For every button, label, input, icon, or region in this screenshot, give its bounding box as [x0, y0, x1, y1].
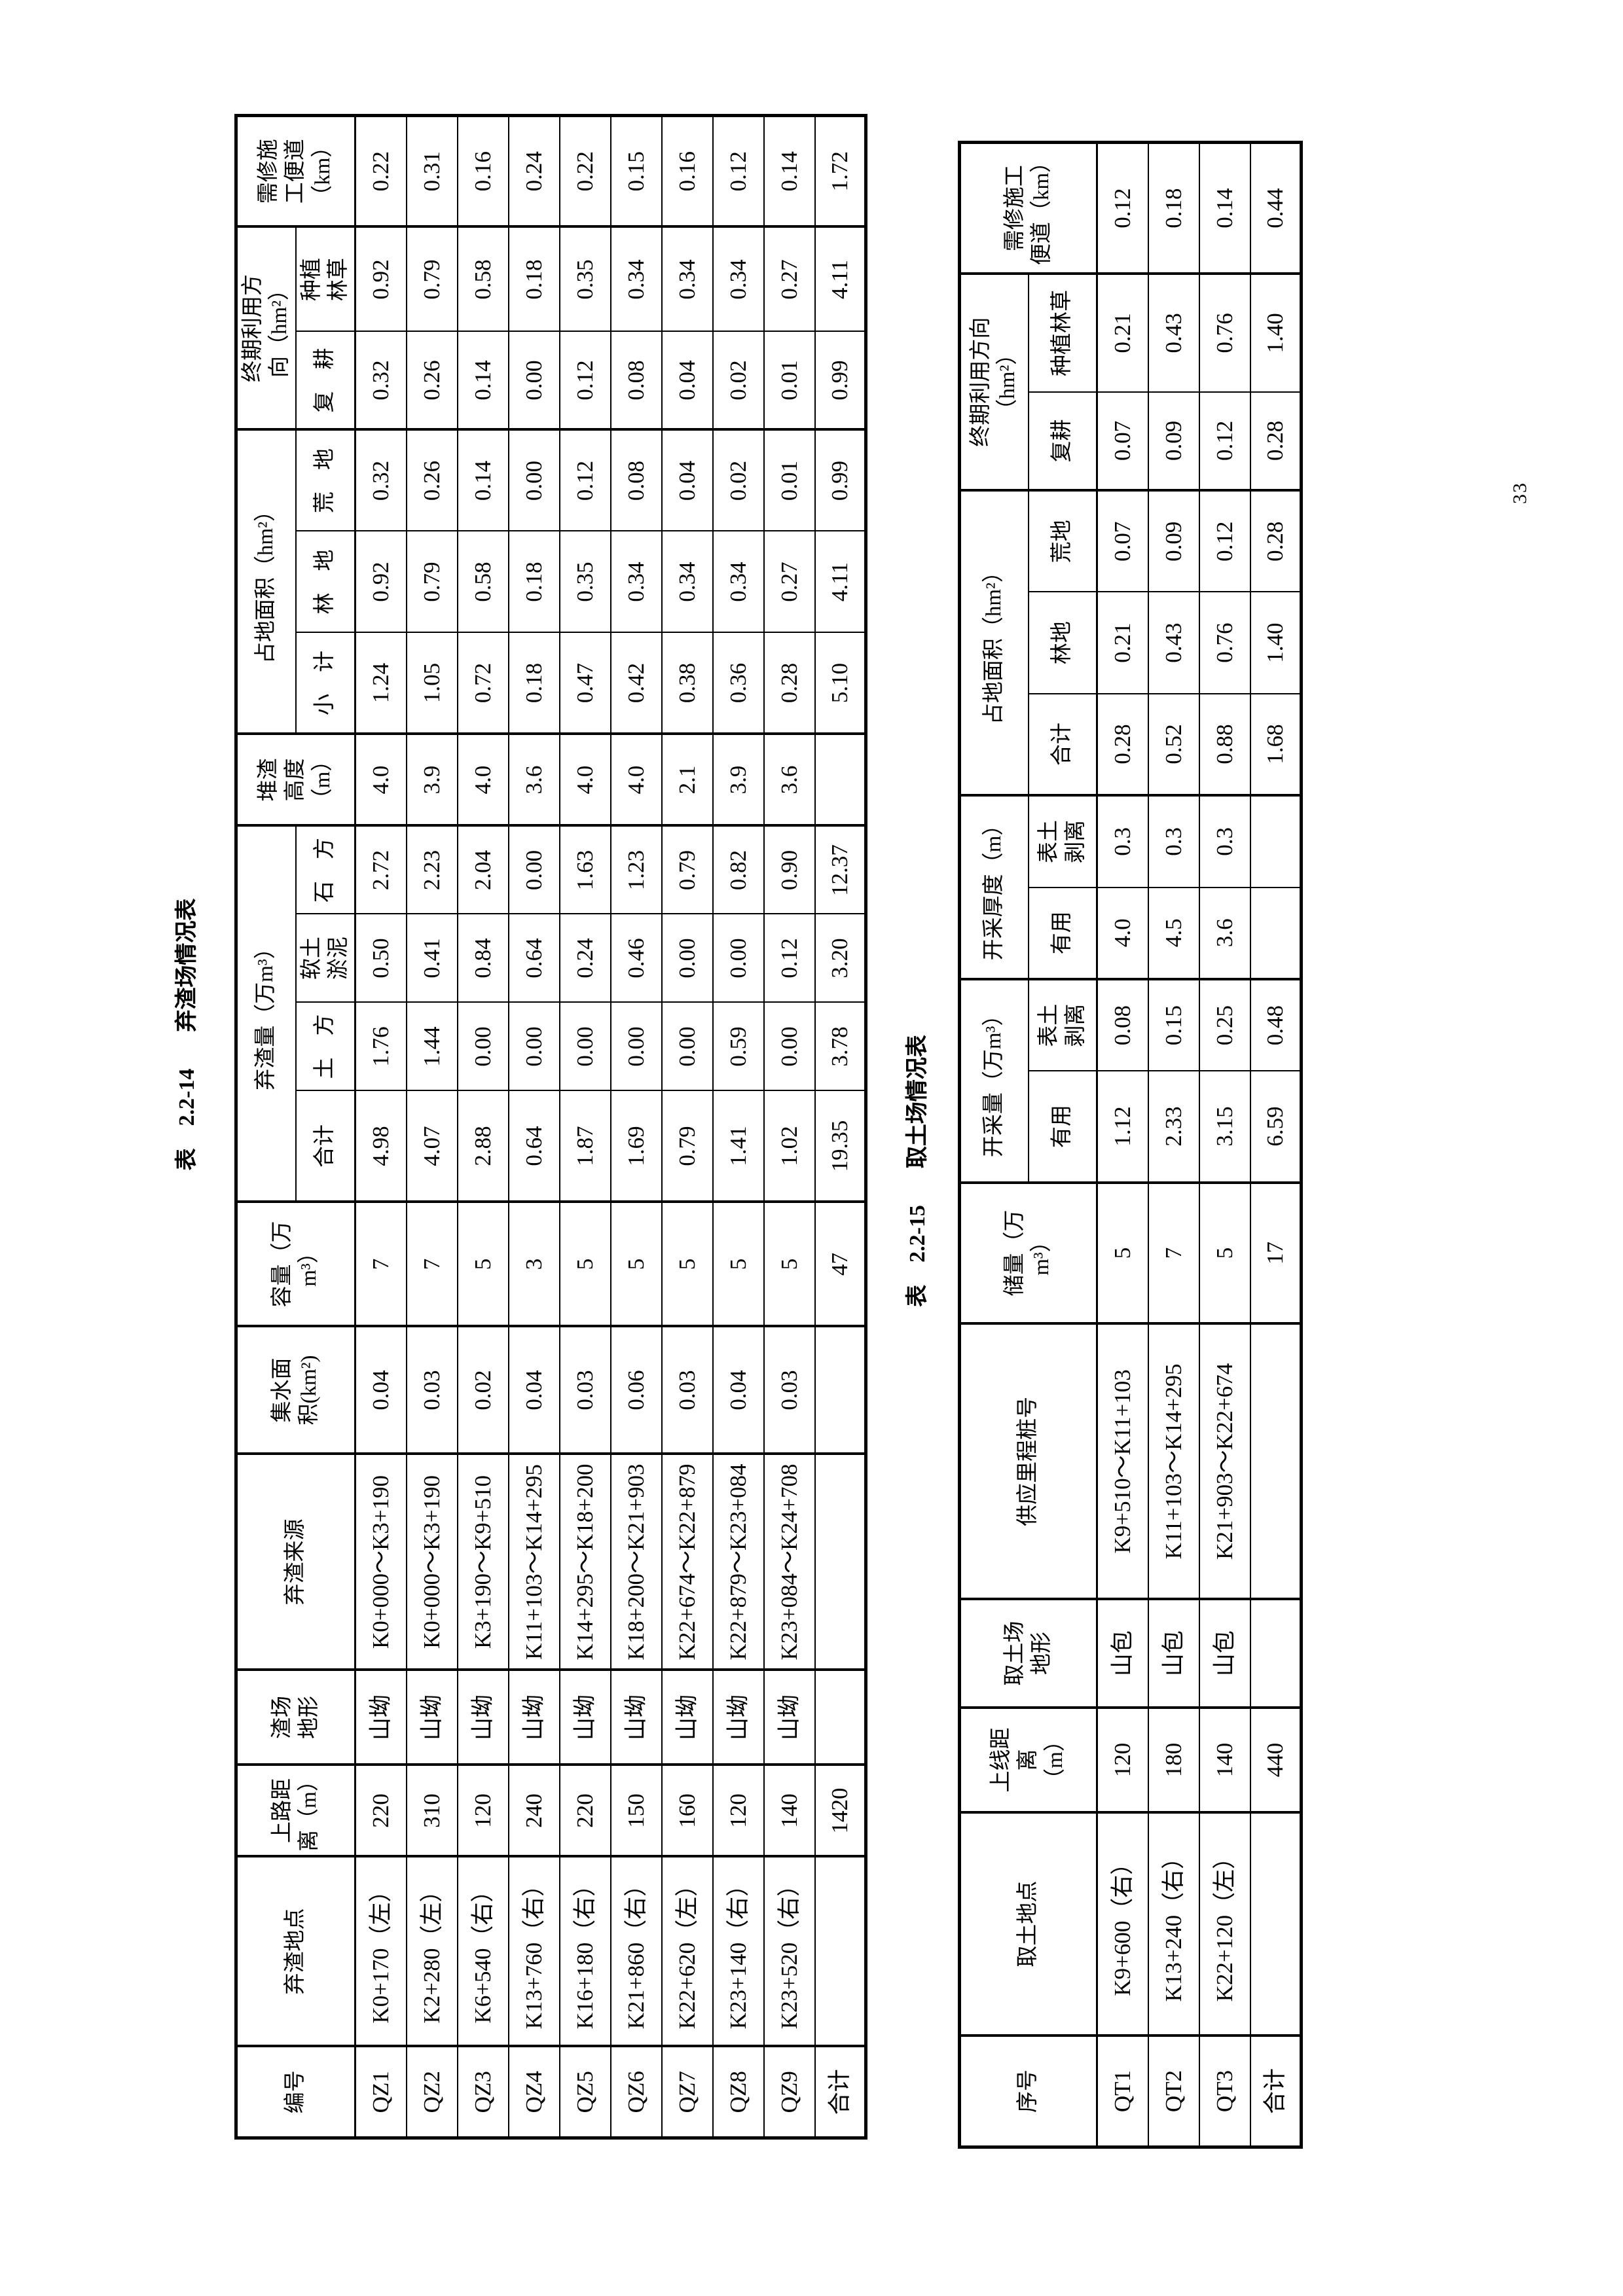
cell: 山坳	[764, 1670, 815, 1765]
cell: 2.04	[458, 826, 509, 914]
cell: 0.00	[764, 1003, 815, 1091]
cell: 310	[407, 1765, 458, 1857]
table-row: 合计440176.590.481.681.400.280.281.400.44	[1250, 143, 1302, 2147]
cell: 0.12	[1199, 490, 1250, 592]
cell: 0.22	[356, 116, 407, 227]
borrow-pit-table: 序号取土地点上线距 离 （m）取土场 地形供应里程桩号储量（万 m³）开采量（万…	[958, 141, 1303, 2149]
header-row: 编号弃渣地点上路距 离（m）渣场 地形弃渣来源集水面 积(km²)容量（万 m³…	[236, 116, 296, 2138]
cell: 0.79	[662, 1091, 713, 1202]
cell: 山包	[1199, 1599, 1250, 1707]
cell	[815, 1327, 866, 1454]
cell: 0.09	[1148, 490, 1199, 592]
cell: 0.18	[509, 531, 560, 633]
cell: 0.34	[611, 227, 662, 332]
cell: 0.47	[560, 633, 611, 734]
cell: 0.03	[407, 1327, 458, 1454]
column-header: 上线距 离 （m）	[960, 1708, 1097, 1812]
column-subheader: 复耕	[1029, 392, 1097, 490]
cell: K0+170（左）	[356, 1857, 407, 2047]
cell: 0.18	[509, 633, 560, 734]
cell: 3	[509, 1202, 560, 1327]
column-subheader: 种植 林草	[296, 227, 356, 332]
cell: 2.72	[356, 826, 407, 914]
cell: 0.03	[560, 1327, 611, 1454]
cell: 0.15	[611, 116, 662, 227]
cell: 0.07	[1097, 490, 1148, 592]
cell: K2+280（左）	[407, 1857, 458, 2047]
cell: 山坳	[509, 1670, 560, 1765]
cell	[1250, 888, 1302, 979]
table-row: QZ3K6+540（右）120山坳K3+190～K9+5100.0252.880…	[458, 116, 509, 2138]
cell: 0.09	[1148, 392, 1199, 490]
cell: 1.69	[611, 1091, 662, 1202]
page-number: 33	[1509, 482, 1531, 504]
cell: 6.59	[1250, 1071, 1302, 1182]
cell: K14+295～K18+200	[560, 1454, 611, 1670]
cell: 0.76	[1199, 274, 1250, 391]
column-subheader: 林 地	[296, 531, 356, 633]
cell: 0.12	[560, 430, 611, 531]
cell: 0.00	[560, 1003, 611, 1091]
cell: 220	[356, 1765, 407, 1857]
cell: 140	[1199, 1708, 1250, 1812]
cell: K21+860（右）	[611, 1857, 662, 2047]
cell: QZ1	[356, 2047, 407, 2138]
cell: 0.00	[458, 1003, 509, 1091]
cell: 0.41	[407, 914, 458, 1003]
cell: 5.10	[815, 633, 866, 734]
cell: 0.43	[1148, 592, 1199, 693]
cell: 0.28	[1250, 490, 1302, 592]
cell: 4.0	[611, 734, 662, 826]
cell: K13+240（右）	[1148, 1812, 1199, 2036]
cell: 12.37	[815, 826, 866, 914]
cell: 1.40	[1250, 592, 1302, 693]
table-row: QT2K13+240（右）180山包K11+103～K14+29572.330.…	[1148, 143, 1199, 2147]
cell: 0.25	[1199, 979, 1250, 1071]
cell: 0.06	[611, 1327, 662, 1454]
cell: 220	[560, 1765, 611, 1857]
cell: 0.31	[407, 116, 458, 227]
cell: 0.34	[611, 531, 662, 633]
cell: QZ9	[764, 2047, 815, 2138]
cell: 0.12	[764, 914, 815, 1003]
cell: QZ3	[458, 2047, 509, 2138]
cell: 5	[560, 1202, 611, 1327]
cell: 山坳	[407, 1670, 458, 1765]
cell: K22+879～K23+084	[713, 1454, 764, 1670]
cell: 0.99	[815, 332, 866, 430]
cell: 0.27	[764, 531, 815, 633]
cell: 2.33	[1148, 1071, 1199, 1182]
cell: 7	[356, 1202, 407, 1327]
cell: 1.41	[713, 1091, 764, 1202]
cell: 0.15	[1148, 979, 1199, 1071]
cell: QZ2	[407, 2047, 458, 2138]
cell: 440	[1250, 1708, 1302, 1812]
column-subheader: 软土 淤泥	[296, 914, 356, 1003]
cell: 5	[458, 1202, 509, 1327]
table-row: QZ5K16+180（右）220山坳K14+295～K18+2000.0351.…	[560, 116, 611, 2138]
cell	[1250, 795, 1302, 887]
column-header: 开采量（万m³）	[960, 979, 1029, 1183]
cell: K3+190～K9+510	[458, 1454, 509, 1670]
cell: K18+200～K21+903	[611, 1454, 662, 1670]
cell: 0.12	[560, 332, 611, 430]
cell: QZ6	[611, 2047, 662, 2138]
cell: 3.6	[509, 734, 560, 826]
cell: 0.46	[611, 914, 662, 1003]
cell: 0.64	[509, 914, 560, 1003]
column-header: 上路距 离（m）	[236, 1765, 356, 1857]
cell: 0.00	[509, 430, 560, 531]
column-subheader: 林地	[1029, 592, 1097, 693]
column-header: 堆渣 高度 （m）	[236, 734, 356, 826]
cell: 0.04	[713, 1327, 764, 1454]
column-header: 序号	[960, 2036, 1097, 2147]
cell: 5	[1097, 1183, 1148, 1324]
column-header: 需修施 工便道 （km）	[236, 116, 356, 227]
cell: K21+903～K22+674	[1199, 1323, 1250, 1599]
cell: 4.0	[1097, 888, 1148, 979]
column-subheader: 荒 地	[296, 430, 356, 531]
cell: 0.42	[611, 633, 662, 734]
column-subheader: 合计	[296, 1091, 356, 1202]
cell: QT3	[1199, 2036, 1250, 2147]
cell: 4.07	[407, 1091, 458, 1202]
cell: 0.04	[662, 332, 713, 430]
cell: 0.72	[458, 633, 509, 734]
cell: 山包	[1148, 1599, 1199, 1707]
cell: 1420	[815, 1765, 866, 1857]
cell: 0.00	[611, 1003, 662, 1091]
table-row: QZ4K13+760（右）240山坳K11+103～K14+2950.0430.…	[509, 116, 560, 2138]
cell: K22+120（左）	[1199, 1812, 1250, 2036]
cell: 0.04	[509, 1327, 560, 1454]
cell: QT1	[1097, 2036, 1148, 2147]
cell: 1.40	[1250, 274, 1302, 391]
cell: 0.26	[407, 332, 458, 430]
cell: 5	[764, 1202, 815, 1327]
column-subheader: 表土 剥离	[1029, 795, 1097, 887]
cell: 0.88	[1199, 694, 1250, 795]
cell: 4.11	[815, 531, 866, 633]
cell: 0.14	[764, 116, 815, 227]
table-row: QZ2K2+280（左）310山坳K0+000～K3+1900.0374.071…	[407, 116, 458, 2138]
cell: K23+140（右）	[713, 1857, 764, 2047]
table-header: 编号弃渣地点上路距 离（m）渣场 地形弃渣来源集水面 积(km²)容量（万 m³…	[236, 116, 356, 2138]
cell: 0.34	[713, 227, 764, 332]
column-header: 渣场 地形	[236, 1670, 356, 1765]
cell: 0.35	[560, 531, 611, 633]
cell: 0.3	[1097, 795, 1148, 887]
cell: 0.04	[662, 430, 713, 531]
cell: 0.44	[1250, 143, 1302, 274]
cell	[815, 734, 866, 826]
cell: 0.08	[611, 430, 662, 531]
cell: 山坳	[458, 1670, 509, 1765]
cell: K23+084～K24+708	[764, 1454, 815, 1670]
cell: 0.12	[713, 116, 764, 227]
cell: QZ5	[560, 2047, 611, 2138]
header-row: 序号取土地点上线距 离 （m）取土场 地形供应里程桩号储量（万 m³）开采量（万…	[960, 143, 1029, 2147]
cell: 0.22	[560, 116, 611, 227]
waste-slag-table-number: 表 2.2-14	[175, 1069, 199, 1171]
cell: 0.00	[713, 914, 764, 1003]
column-subheader: 种植林草	[1029, 274, 1097, 391]
cell: K0+000～K3+190	[356, 1454, 407, 1670]
cell: 山坳	[356, 1670, 407, 1765]
cell: 3.15	[1199, 1071, 1250, 1182]
cell: 0.01	[764, 332, 815, 430]
cell: 0.50	[356, 914, 407, 1003]
borrow-pit-table-name: 取土场情况表	[905, 1035, 930, 1168]
cell: 0.34	[662, 531, 713, 633]
cell: 120	[713, 1765, 764, 1857]
cell: 0.35	[560, 227, 611, 332]
cell: K0+000～K3+190	[407, 1454, 458, 1670]
cell: 3.6	[1199, 888, 1250, 979]
column-header: 编号	[236, 2047, 356, 2138]
cell: 0.28	[764, 633, 815, 734]
cell: 0.12	[1199, 392, 1250, 490]
table-row: QT3K22+120（左）140山包K21+903～K22+67453.150.…	[1199, 143, 1250, 2147]
cell: 0.00	[662, 914, 713, 1003]
column-header: 占地面积（hm²）	[236, 430, 296, 734]
cell: 160	[662, 1765, 713, 1857]
cell: K22+674～K22+879	[662, 1454, 713, 1670]
cell: 0.27	[764, 227, 815, 332]
cell	[815, 1454, 866, 1670]
borrow-pit-table-number: 表 2.2-15	[905, 1205, 930, 1307]
cell: QT2	[1148, 2036, 1199, 2147]
cell: 0.08	[611, 332, 662, 430]
cell: 140	[764, 1765, 815, 1857]
column-header: 储量（万 m³）	[960, 1183, 1097, 1324]
cell: 1.24	[356, 633, 407, 734]
cell: 0.26	[407, 430, 458, 531]
cell: 0.03	[662, 1327, 713, 1454]
column-header: 弃渣地点	[236, 1857, 356, 2047]
cell: 0.14	[458, 332, 509, 430]
cell	[815, 1670, 866, 1765]
cell: 0.58	[458, 227, 509, 332]
cell: 4.0	[560, 734, 611, 826]
cell: 7	[1148, 1183, 1199, 1324]
cell: 150	[611, 1765, 662, 1857]
cell: 0.90	[764, 826, 815, 914]
cell: 1.23	[611, 826, 662, 914]
page: 表 2.2-14弃渣场情况表 编号弃渣地点上路距 离（m）渣场 地形弃渣来源集水…	[0, 0, 1623, 2296]
cell: 0.76	[1199, 592, 1250, 693]
cell: 山包	[1097, 1599, 1148, 1707]
cell: 合计	[1250, 2036, 1302, 2147]
column-header: 取土地点	[960, 1812, 1097, 2036]
cell: 4.0	[356, 734, 407, 826]
cell: 1.63	[560, 826, 611, 914]
cell: 0.43	[1148, 274, 1199, 391]
cell: 0.01	[764, 430, 815, 531]
cell: 0.00	[509, 1003, 560, 1091]
cell: 合计	[815, 2047, 866, 2138]
cell: 1.72	[815, 116, 866, 227]
cell: K9+600（右）	[1097, 1812, 1148, 2036]
cell: 0.92	[356, 227, 407, 332]
table-row: QZ8K23+140（右）120山坳K22+879～K23+0840.0451.…	[713, 116, 764, 2138]
cell: K16+180（右）	[560, 1857, 611, 2047]
cell	[1250, 1812, 1302, 2036]
cell: K11+103～K14+295	[1148, 1323, 1199, 1599]
cell: 0.00	[662, 1003, 713, 1091]
cell: 5	[713, 1202, 764, 1327]
cell: 0.82	[713, 826, 764, 914]
cell: 0.02	[713, 430, 764, 531]
cell: 0.00	[509, 826, 560, 914]
cell: 3.9	[713, 734, 764, 826]
cell: 240	[509, 1765, 560, 1857]
cell: 0.14	[1199, 143, 1250, 274]
cell: 7	[407, 1202, 458, 1327]
waste-slag-table-name: 弃渣场情况表	[175, 899, 199, 1032]
cell: 0.79	[407, 227, 458, 332]
cell: 5	[662, 1202, 713, 1327]
cell	[1250, 1599, 1302, 1707]
table-row: QZ1K0+170（左）220山坳K0+000～K3+1900.0474.981…	[356, 116, 407, 2138]
cell: 0.3	[1148, 795, 1199, 887]
cell: 3.20	[815, 914, 866, 1003]
table-row: 合计14204719.353.783.2012.375.104.110.990.…	[815, 116, 866, 2138]
borrow-pit-table-title: 表 2.2-15取土场情况表	[905, 141, 932, 2149]
cell: 0.79	[407, 531, 458, 633]
cell	[815, 1857, 866, 2047]
cell: QZ7	[662, 2047, 713, 2138]
table-row: QZ9K23+520（右）140山坳K23+084～K24+7080.0351.…	[764, 116, 815, 2138]
column-subheader: 荒地	[1029, 490, 1097, 592]
column-header: 开采厚度（m）	[960, 795, 1029, 979]
waste-slag-table: 编号弃渣地点上路距 离（m）渣场 地形弃渣来源集水面 积(km²)容量（万 m³…	[234, 114, 867, 2140]
cell: 0.32	[356, 430, 407, 531]
column-header: 弃渣量（万m³）	[236, 826, 296, 1202]
cell: K11+103～K14+295	[509, 1454, 560, 1670]
cell: 1.68	[1250, 694, 1302, 795]
cell: 2.1	[662, 734, 713, 826]
cell: 0.18	[509, 227, 560, 332]
cell: 0.59	[713, 1003, 764, 1091]
cell: 0.21	[1097, 274, 1148, 391]
cell: 3.78	[815, 1003, 866, 1091]
cell: 0.28	[1250, 392, 1302, 490]
cell: QZ8	[713, 2047, 764, 2138]
cell: 0.02	[458, 1327, 509, 1454]
column-header: 取土场 地形	[960, 1599, 1097, 1707]
column-header: 容量（万 m³）	[236, 1202, 356, 1327]
cell: 0.99	[815, 430, 866, 531]
cell: K13+760（右）	[509, 1857, 560, 2047]
cell: 0.24	[560, 914, 611, 1003]
column-subheader: 土 方	[296, 1003, 356, 1091]
cell: 1.12	[1097, 1071, 1148, 1182]
column-subheader: 复 耕	[296, 332, 356, 430]
cell: 4.5	[1148, 888, 1199, 979]
waste-slag-table-title: 表 2.2-14弃渣场情况表	[174, 139, 201, 2140]
cell: 山坳	[611, 1670, 662, 1765]
column-subheader: 合计	[1029, 694, 1097, 795]
cell: 5	[611, 1202, 662, 1327]
cell: 0.92	[356, 531, 407, 633]
cell: 0.24	[509, 116, 560, 227]
cell: 0.28	[1097, 694, 1148, 795]
cell: 0.21	[1097, 592, 1148, 693]
cell: K23+520（右）	[764, 1857, 815, 2047]
cell: 0.52	[1148, 694, 1199, 795]
cell: 2.88	[458, 1091, 509, 1202]
cell	[1250, 1323, 1302, 1599]
column-header: 需修施工 便道（km）	[960, 143, 1097, 274]
cell: 0.38	[662, 633, 713, 734]
cell: 180	[1148, 1708, 1199, 1812]
cell: 0.03	[764, 1327, 815, 1454]
cell: 山坳	[560, 1670, 611, 1765]
column-subheader: 有用	[1029, 1071, 1097, 1182]
cell: 0.00	[509, 332, 560, 430]
cell: 4.0	[458, 734, 509, 826]
rotated-landscape-content: 表 2.2-14弃渣场情况表 编号弃渣地点上路距 离（m）渣场 地形弃渣来源集水…	[79, 79, 1552, 2193]
column-header: 终期利用方 向（hm²）	[236, 227, 296, 430]
cell: 0.79	[662, 826, 713, 914]
cell: K22+620（左）	[662, 1857, 713, 2047]
cell: 0.07	[1097, 392, 1148, 490]
cell: 1.87	[560, 1091, 611, 1202]
cell: 5	[1199, 1183, 1250, 1324]
cell: 2.23	[407, 826, 458, 914]
table-row: QZ7K22+620（左）160山坳K22+674～K22+8790.0350.…	[662, 116, 713, 2138]
column-header: 集水面 积(km²)	[236, 1327, 356, 1454]
cell: 0.34	[713, 531, 764, 633]
column-header: 占地面积（hm²）	[960, 490, 1029, 795]
cell: 0.36	[713, 633, 764, 734]
cell: 山坳	[662, 1670, 713, 1765]
column-header: 供应里程桩号	[960, 1323, 1097, 1599]
cell: 0.12	[1097, 143, 1148, 274]
cell: 0.3	[1199, 795, 1250, 887]
cell: 0.16	[662, 116, 713, 227]
column-subheader: 有用	[1029, 888, 1097, 979]
column-subheader: 小 计	[296, 633, 356, 734]
cell: 4.98	[356, 1091, 407, 1202]
cell: 3.6	[764, 734, 815, 826]
cell: 3.9	[407, 734, 458, 826]
cell: 0.16	[458, 116, 509, 227]
cell: 47	[815, 1202, 866, 1327]
cell: 19.35	[815, 1091, 866, 1202]
cell: 120	[458, 1765, 509, 1857]
cell: 120	[1097, 1708, 1148, 1812]
cell: 0.08	[1097, 979, 1148, 1071]
cell: 0.64	[509, 1091, 560, 1202]
cell: 17	[1250, 1183, 1302, 1324]
cell: 0.02	[713, 332, 764, 430]
cell: 4.11	[815, 227, 866, 332]
table-header: 序号取土地点上线距 离 （m）取土场 地形供应里程桩号储量（万 m³）开采量（万…	[960, 143, 1097, 2147]
column-header: 终期利用方向 （hm²）	[960, 274, 1029, 490]
column-subheader: 表土 剥离	[1029, 979, 1097, 1071]
cell: 0.48	[1250, 979, 1302, 1071]
table-row: QZ6K21+860（右）150山坳K18+200～K21+9030.0651.…	[611, 116, 662, 2138]
column-subheader: 石 方	[296, 826, 356, 914]
cell: 1.76	[356, 1003, 407, 1091]
cell: 1.02	[764, 1091, 815, 1202]
cell: K9+510～K11+103	[1097, 1323, 1148, 1599]
